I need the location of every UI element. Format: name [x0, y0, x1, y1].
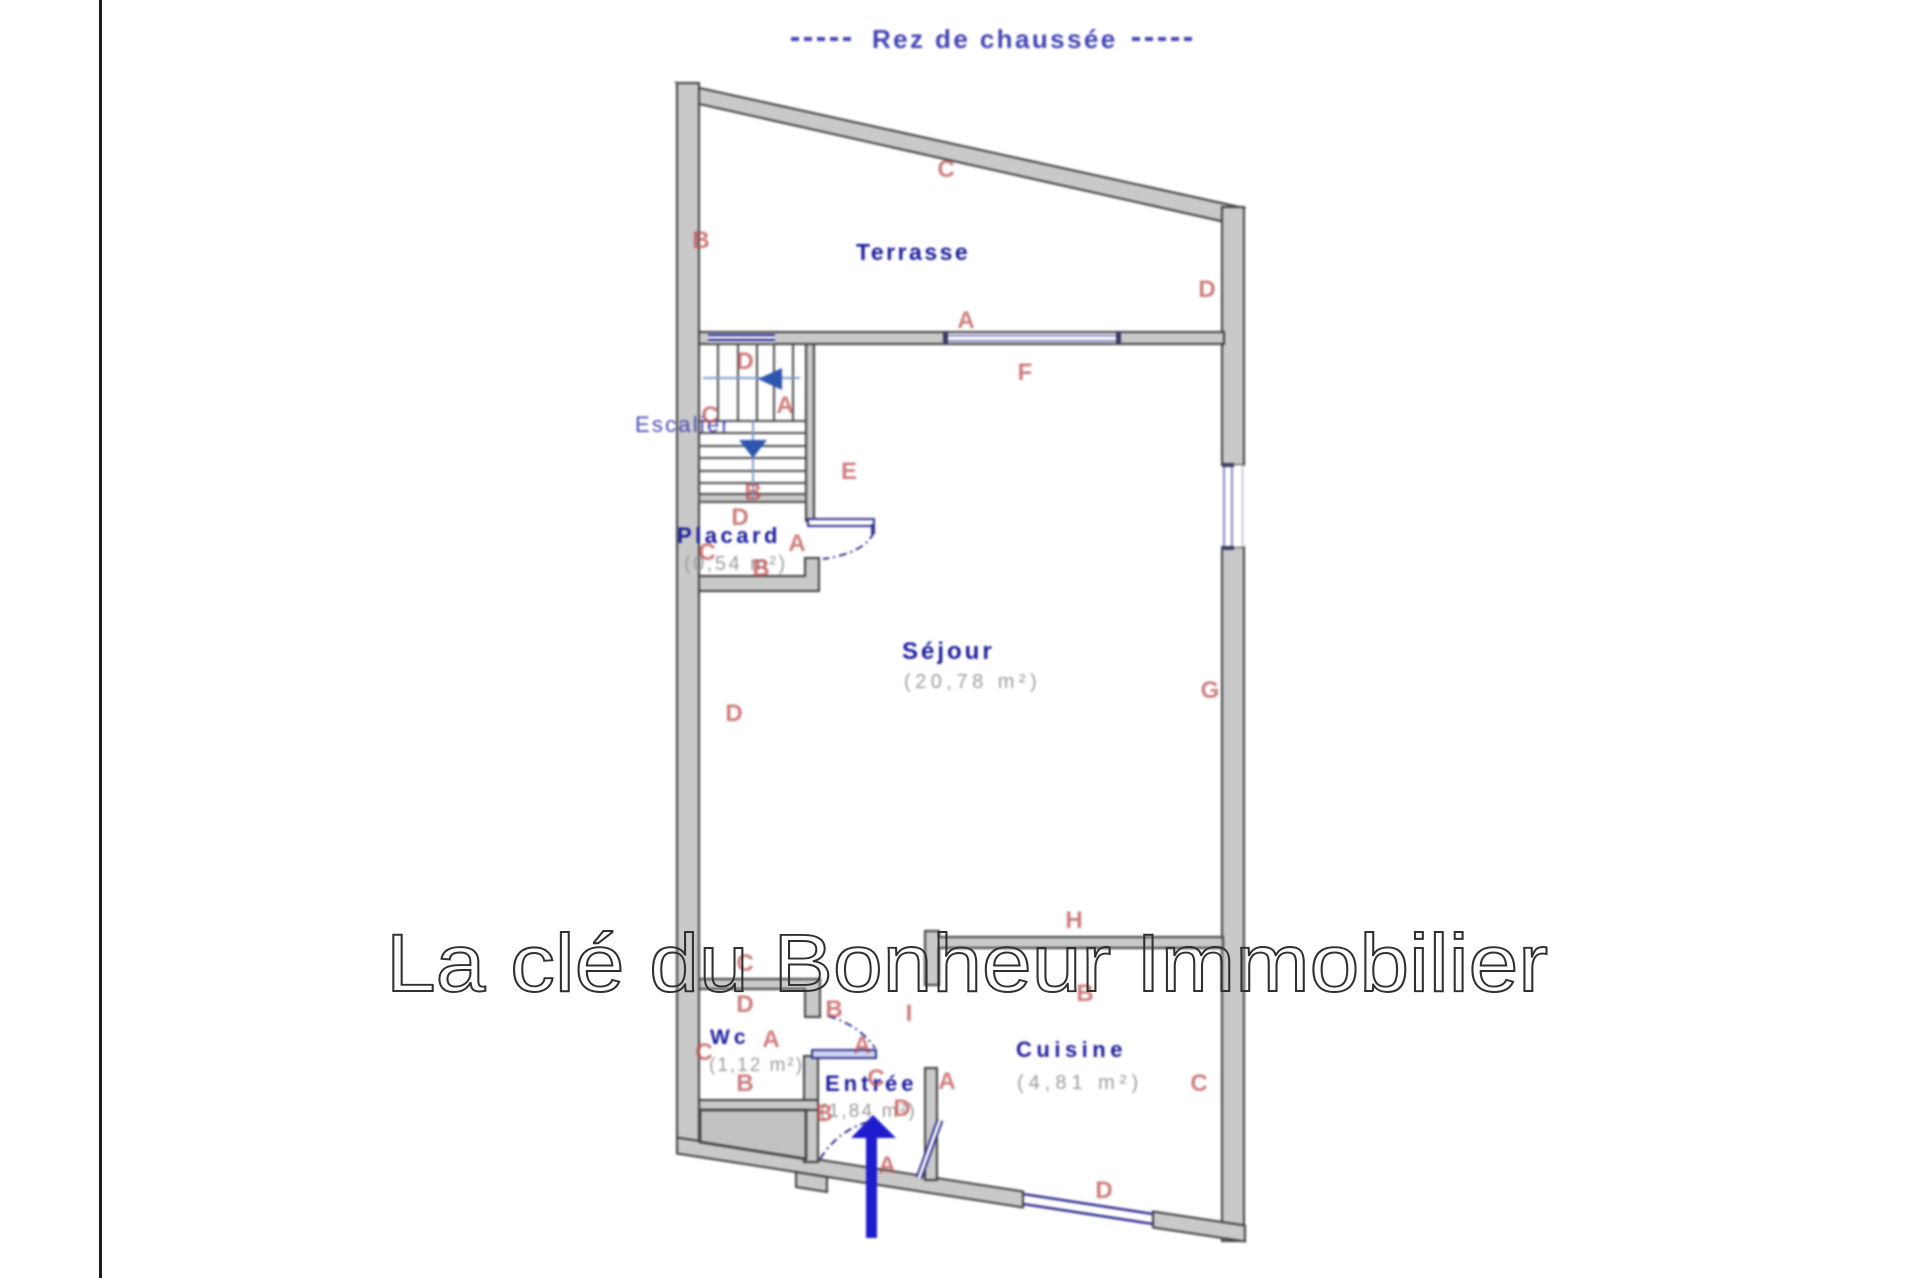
svg-text:A: A — [938, 1068, 955, 1095]
svg-text:C: C — [695, 1039, 712, 1066]
svg-text:D: D — [893, 1095, 910, 1122]
svg-text:D: D — [731, 504, 748, 531]
svg-text:A: A — [788, 530, 805, 557]
svg-text:(4,81 m²): (4,81 m²) — [1017, 1072, 1143, 1094]
svg-text:A: A — [878, 1152, 895, 1179]
svg-text:B: B — [752, 555, 769, 582]
svg-text:B: B — [692, 227, 709, 254]
svg-text:C: C — [701, 402, 718, 429]
svg-text:C: C — [867, 1065, 884, 1092]
svg-text:D: D — [1095, 1177, 1112, 1204]
svg-text:(20,78 m²): (20,78 m²) — [904, 671, 1041, 693]
svg-text:D: D — [736, 348, 753, 375]
svg-text:C: C — [698, 539, 715, 566]
svg-text:C: C — [937, 156, 954, 183]
svg-text:A: A — [762, 1026, 779, 1053]
svg-text:B: B — [815, 1100, 832, 1127]
svg-text:A: A — [776, 392, 793, 419]
svg-text:Rez de chaussée: Rez de chaussée — [872, 24, 1118, 54]
svg-text:A: A — [853, 1032, 870, 1059]
svg-text:Placard: Placard — [677, 523, 781, 548]
svg-text:B: B — [736, 1070, 753, 1097]
svg-text:E: E — [841, 458, 857, 485]
svg-text:(1,12 m²): (1,12 m²) — [709, 1055, 804, 1076]
svg-text:D: D — [725, 700, 742, 727]
svg-text:Cuisine: Cuisine — [1016, 1037, 1127, 1062]
svg-text:A: A — [957, 307, 974, 334]
svg-text:Terrasse: Terrasse — [856, 239, 970, 265]
svg-text:Wc: Wc — [710, 1026, 750, 1049]
svg-text:B: B — [744, 479, 761, 506]
svg-text:Séjour: Séjour — [902, 638, 995, 665]
svg-text:G: G — [1201, 677, 1220, 704]
svg-text:La clé du Bonheur Immobilier: La clé du Bonheur Immobilier — [386, 918, 1548, 1009]
svg-text:F: F — [1018, 359, 1033, 386]
svg-text:D: D — [1198, 276, 1215, 303]
svg-text:C: C — [1190, 1070, 1207, 1097]
